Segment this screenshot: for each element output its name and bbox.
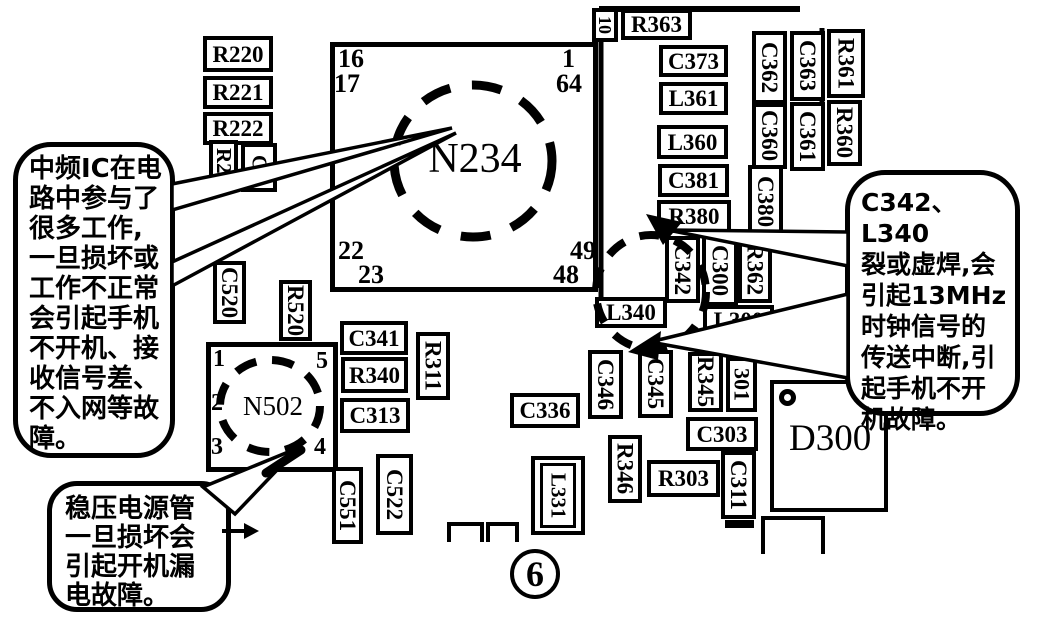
component-label-r220: R220 bbox=[203, 36, 273, 72]
component-label-r362: R362 bbox=[738, 236, 772, 303]
component-label-l360: L360 bbox=[657, 125, 728, 159]
figure-number-badge: 6 bbox=[510, 549, 560, 599]
n502-pin-5: 5 bbox=[316, 349, 328, 373]
component-label-l361: L361 bbox=[659, 82, 728, 115]
ic-n234-label: N234 bbox=[420, 138, 530, 184]
callout-clock-fault: C342、L340 裂或虚焊,会 引起13MHz 时钟信号的 传送中断,引 起手… bbox=[845, 170, 1020, 416]
component-label-c522: C522 bbox=[376, 454, 413, 535]
component-label-c313: C313 bbox=[340, 398, 410, 433]
component-label-l331: L331 bbox=[540, 463, 576, 528]
component-label-r520: R520 bbox=[279, 280, 312, 341]
component-label-c300: C300 bbox=[702, 235, 738, 306]
n234-pin-48: 48 bbox=[553, 262, 579, 288]
component-label-r346: R346 bbox=[608, 435, 642, 503]
component-label-10: 10 bbox=[592, 8, 618, 42]
component-label-c380: C380 bbox=[748, 165, 783, 238]
d300-pin1-marker bbox=[779, 389, 796, 406]
component-label-c336: C336 bbox=[510, 393, 580, 428]
pad-bracket-1 bbox=[447, 522, 484, 542]
component-label-c303: C303 bbox=[686, 417, 758, 451]
component-label-c520: C520 bbox=[213, 261, 246, 324]
component-label-r380: R380 bbox=[657, 200, 731, 233]
component-label-c3-partial: C3 bbox=[241, 143, 277, 192]
n502-pin-1: 1 bbox=[213, 347, 225, 371]
component-label-c551: C551 bbox=[332, 467, 363, 544]
component-label-301: 301 bbox=[726, 357, 757, 412]
component-label-c341: C341 bbox=[340, 321, 408, 355]
component-label-c373: C373 bbox=[659, 45, 728, 77]
component-label-r303: R303 bbox=[647, 460, 720, 497]
d300-lower-bracket bbox=[761, 516, 825, 554]
component-label-c361: C361 bbox=[790, 102, 825, 171]
component-label-r360: R360 bbox=[827, 100, 862, 166]
component-label-r363: R363 bbox=[621, 9, 692, 40]
component-label-c342: C342 bbox=[665, 236, 700, 303]
component-label-r340: R340 bbox=[341, 357, 408, 393]
n234-pin-17: 17 bbox=[334, 71, 360, 97]
component-label-c345: C345 bbox=[638, 350, 673, 418]
component-label-c362: C362 bbox=[752, 31, 787, 104]
component-label-c346: C346 bbox=[588, 350, 623, 419]
component-label-r311: R311 bbox=[416, 332, 450, 400]
component-label-c311: C311 bbox=[721, 451, 756, 519]
component-label-r22-partial: R22 bbox=[209, 140, 238, 192]
pad-bar bbox=[725, 520, 754, 528]
n234-pin-64: 64 bbox=[556, 71, 582, 97]
component-label-r221: R221 bbox=[203, 76, 273, 109]
component-label-c363: C363 bbox=[790, 31, 825, 101]
component-label-c360: C360 bbox=[752, 103, 787, 169]
component-label-r361: R361 bbox=[827, 29, 865, 98]
n234-pin-23: 23 bbox=[358, 262, 384, 288]
callout-regulator: 稳压电源管 一旦损坏会 引起开机漏 电故障。 bbox=[47, 481, 231, 612]
component-label-c381: C381 bbox=[658, 164, 729, 197]
component-label-l340: L340 bbox=[595, 297, 667, 328]
component-label-l300: L300 bbox=[703, 305, 774, 335]
pad-bracket-2 bbox=[486, 522, 519, 542]
ic-n502-label: N502 bbox=[240, 393, 306, 421]
n502-pin-2: 2 bbox=[211, 391, 223, 415]
n502-pin-4: 4 bbox=[314, 435, 326, 459]
callout-if-ic: 中频IC在电 路中参与了 很多工作, 一旦损坏或 工作不正常 会引起手机 不开机… bbox=[13, 142, 175, 458]
pcb-fault-diagram: N234 16 17 1 64 22 23 49 48 N502 1 5 2 3… bbox=[0, 0, 1047, 643]
component-label-r345: R345 bbox=[688, 352, 723, 412]
n502-pin-3: 3 bbox=[211, 435, 223, 459]
